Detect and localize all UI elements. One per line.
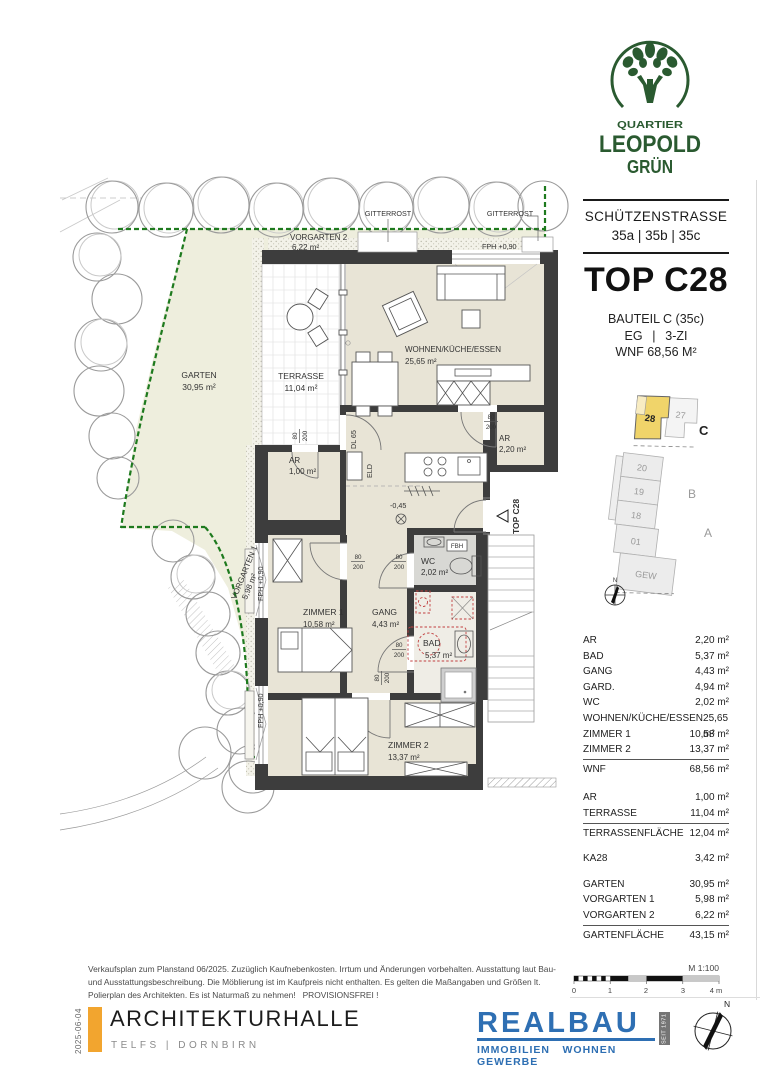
keyplan-section-b: B bbox=[688, 487, 696, 501]
scale-bar: M 1:100 0 1 2 3 4 m bbox=[566, 958, 762, 998]
fph-panel bbox=[245, 691, 254, 759]
table-total-garten: GARTENFLÄCHE43,15 m² bbox=[583, 925, 729, 944]
svg-text:200: 200 bbox=[353, 564, 364, 571]
plan-sheet: GITTERROST GITTERROST VORGARTEN 2 6,22 m… bbox=[0, 0, 763, 1080]
svg-text:4 m: 4 m bbox=[710, 986, 723, 995]
label-zimmer1-area: 10,58 m² bbox=[303, 620, 335, 629]
table-total-wnf: WNF68,56 m² bbox=[583, 759, 729, 778]
area-table: AR2,20 m² BAD5,37 m² GANG4,43 m² GARD.4,… bbox=[583, 633, 729, 943]
label-fph-left-2: FPH +0,90 bbox=[256, 693, 265, 728]
label-wohnen: WOHNEN/KÜCHE/ESSEN bbox=[405, 345, 501, 354]
table-row: VORGARTEN 15,98 m² bbox=[583, 892, 729, 908]
svg-text:200: 200 bbox=[394, 564, 405, 571]
north-compass-icon: N bbox=[686, 996, 756, 1066]
label-level: -0,45 bbox=[390, 501, 406, 510]
svg-text:N: N bbox=[613, 578, 617, 584]
label-bad: BAD bbox=[423, 638, 440, 648]
architect-logo-bar bbox=[88, 1007, 102, 1052]
table-row: AR2,20 m² bbox=[583, 633, 729, 649]
scale-label: M 1:100 bbox=[688, 963, 719, 973]
label-garten-area: 30,95 m² bbox=[182, 382, 216, 392]
svg-text:0: 0 bbox=[572, 986, 576, 995]
keyplan-label-20: 20 bbox=[636, 462, 647, 473]
svg-text:200: 200 bbox=[486, 424, 497, 431]
label-garten: GARTEN bbox=[181, 370, 216, 380]
table-row: ZIMMER 110,58 m² bbox=[583, 727, 729, 743]
label-zimmer1: ZIMMER 1 bbox=[303, 607, 344, 617]
kitchen-counter bbox=[437, 365, 530, 381]
svg-text:80: 80 bbox=[292, 432, 299, 439]
svg-text:1: 1 bbox=[608, 986, 612, 995]
plan-date: 2025-06-04 bbox=[74, 1006, 83, 1054]
label-gang-area: 4,43 m² bbox=[372, 620, 399, 629]
label-vorgarten2-area: 6,22 m² bbox=[292, 243, 319, 252]
architect-name: ARCHITEKTURHALLE bbox=[110, 1006, 360, 1032]
bed-1 bbox=[278, 628, 352, 672]
wardrobe bbox=[437, 381, 490, 405]
label-wohnen-area: 25,65 m² bbox=[405, 357, 437, 366]
svg-text:200: 200 bbox=[302, 430, 309, 441]
label-fph-left-1: FPH +0,90 bbox=[256, 566, 265, 601]
compass-north-label: N bbox=[724, 999, 730, 1009]
unit-title: TOP C28 bbox=[583, 261, 729, 300]
label-ar1: AR bbox=[289, 456, 300, 465]
table-row: WC2,02 m² bbox=[583, 695, 729, 711]
table-row: BAD5,37 m² bbox=[583, 649, 729, 665]
realbau-logo: REALBAU IMMOBILIEN WOHNEN GEWERBE bbox=[477, 1008, 655, 1068]
table-row: GARTEN30,95 m² bbox=[583, 877, 729, 893]
disclaimer-text: Verkaufsplan zum Planstand 06/2025. Zuzü… bbox=[88, 963, 560, 1003]
svg-text:2: 2 bbox=[644, 986, 648, 995]
label-gitterrost-2: GITTERROST bbox=[487, 209, 534, 218]
label-gitterrost-1: GITTERROST bbox=[365, 209, 412, 218]
table-row: WOHNEN/KÜCHE/ESSEN25,65 m² bbox=[583, 711, 729, 727]
unit-floor-rooms: EG | 3-ZI bbox=[583, 328, 729, 345]
keyplan: 28 27 20 19 18 01 GEW C B A N bbox=[598, 383, 748, 613]
table-row: GARD.4,94 m² bbox=[583, 680, 729, 696]
svg-text:80: 80 bbox=[355, 554, 362, 561]
label-dl65: DL 65 bbox=[349, 430, 358, 449]
dishwasher bbox=[347, 452, 362, 480]
label-terrasse-area: 11,04 m² bbox=[285, 383, 318, 393]
label-ar2-area: 2,20 m² bbox=[499, 445, 526, 454]
address-box: SCHÜTZENSTRASSE 35a | 35b | 35c bbox=[583, 199, 729, 254]
table-row: TERRASSE11,04 m² bbox=[583, 806, 729, 822]
logo-leopold: LEOPOLD bbox=[599, 131, 701, 158]
sheet-footer-line bbox=[570, 997, 760, 998]
label-fbh: FBH bbox=[451, 543, 463, 550]
keyplan-label-19: 19 bbox=[633, 486, 644, 497]
stairs bbox=[488, 535, 556, 787]
label-zimmer2: ZIMMER 2 bbox=[388, 740, 429, 750]
garden-path bbox=[168, 580, 236, 676]
table-total-terrasse: TERRASSENFLÄCHE12,04 m² bbox=[583, 823, 729, 842]
svg-text:80: 80 bbox=[396, 554, 403, 561]
realbau-name: REALBAU bbox=[477, 1008, 655, 1041]
label-fph-top: FPH +0,90 bbox=[482, 242, 517, 251]
terrace-table bbox=[287, 304, 313, 330]
svg-text:80: 80 bbox=[488, 414, 495, 421]
svg-text:200: 200 bbox=[394, 652, 405, 659]
svg-text:80: 80 bbox=[374, 674, 381, 681]
street-numbers: 35a | 35b | 35c bbox=[583, 228, 729, 243]
keyplan-label-28: 28 bbox=[644, 413, 656, 425]
table-row: AR1,00 m² bbox=[583, 790, 729, 806]
label-wc: WC bbox=[421, 556, 435, 566]
label-ar2: AR bbox=[499, 434, 510, 443]
keyplan-label-27: 27 bbox=[675, 410, 686, 421]
entry-arrow-icon bbox=[497, 510, 508, 522]
keyplan-label-01: 01 bbox=[630, 536, 641, 547]
sofa bbox=[437, 266, 505, 300]
label-entry-topc28: TOP C28 bbox=[511, 499, 521, 534]
fence-strip bbox=[488, 778, 556, 787]
sheet-border-line bbox=[756, 180, 757, 1000]
label-bad-area: 5,37 m² bbox=[425, 651, 452, 660]
keyplan-section-c: C bbox=[699, 423, 709, 438]
tree-icon bbox=[620, 42, 679, 103]
table-row: ZIMMER 213,37 m² bbox=[583, 742, 729, 758]
terrace bbox=[262, 264, 340, 445]
keyplan-section-a: A bbox=[704, 526, 712, 540]
architect-locations: TELFS | DORNBIRN bbox=[111, 1040, 260, 1051]
label-gang: GANG bbox=[372, 607, 397, 617]
table-row: VORGARTEN 26,22 m² bbox=[583, 908, 729, 924]
svg-text:3: 3 bbox=[681, 986, 685, 995]
label-ar1-area: 1,00 m² bbox=[289, 467, 316, 476]
quartier-leopold-gruen-logo: QUARTIER LEOPOLD GRÜN bbox=[593, 37, 721, 182]
label-wc-area: 2,02 m² bbox=[421, 568, 448, 577]
svg-text:200: 200 bbox=[384, 672, 391, 683]
label-eld: ELD bbox=[365, 464, 374, 478]
realbau-badge: SEIT 1971 bbox=[659, 1012, 670, 1045]
street-name: SCHÜTZENSTRASSE bbox=[583, 209, 729, 224]
logo-gruen: GRÜN bbox=[627, 157, 673, 177]
table-row: GANG4,43 m² bbox=[583, 664, 729, 680]
side-table bbox=[462, 310, 480, 328]
table-row: KA283,42 m² bbox=[583, 851, 729, 867]
logo-quartier: QUARTIER bbox=[617, 119, 683, 131]
unit-wnf: WNF 68,56 M² bbox=[583, 344, 729, 361]
unit-details: BAUTEIL C (35c) EG | 3-ZI WNF 68,56 M² bbox=[583, 311, 729, 361]
realbau-tagline: IMMOBILIEN WOHNEN GEWERBE bbox=[477, 1044, 655, 1068]
label-zimmer2-area: 13,37 m² bbox=[388, 753, 420, 762]
keyplan-label-18: 18 bbox=[631, 510, 642, 521]
svg-text:80: 80 bbox=[396, 642, 403, 649]
unit-building: BAUTEIL C (35c) bbox=[583, 311, 729, 328]
dining-table bbox=[352, 362, 398, 406]
label-vorgarten2: VORGARTEN 2 bbox=[290, 233, 348, 242]
label-terrasse: TERRASSE bbox=[278, 371, 324, 381]
